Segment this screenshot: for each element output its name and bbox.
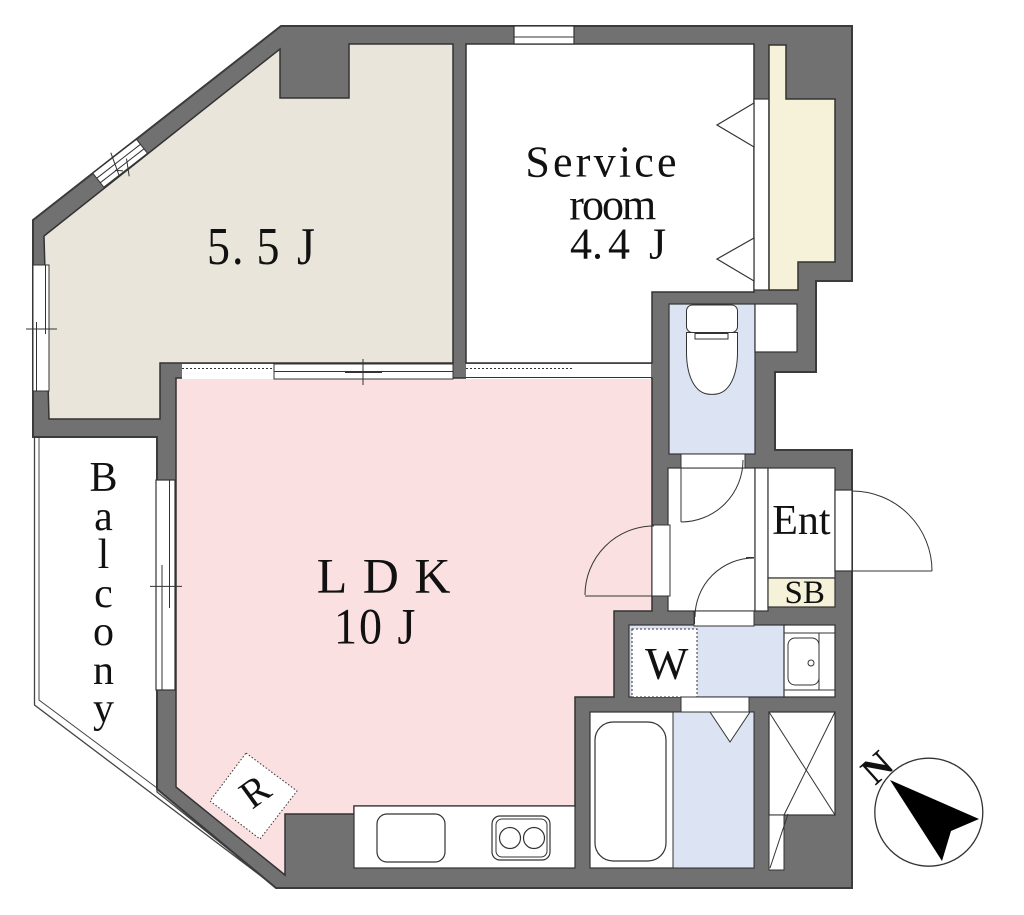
svg-text:10 J: 10 J xyxy=(334,600,417,655)
svg-text:Ent: Ent xyxy=(772,498,831,544)
svg-text:LDK: LDK xyxy=(317,548,466,604)
svg-text:4.4J: 4.4J xyxy=(570,220,666,269)
svg-text:Service: Service xyxy=(525,138,679,187)
svg-text:W: W xyxy=(645,638,689,689)
svg-text:SB: SB xyxy=(785,575,825,611)
svg-text:y: y xyxy=(93,686,114,732)
svg-text:5.5J: 5.5J xyxy=(207,217,315,276)
